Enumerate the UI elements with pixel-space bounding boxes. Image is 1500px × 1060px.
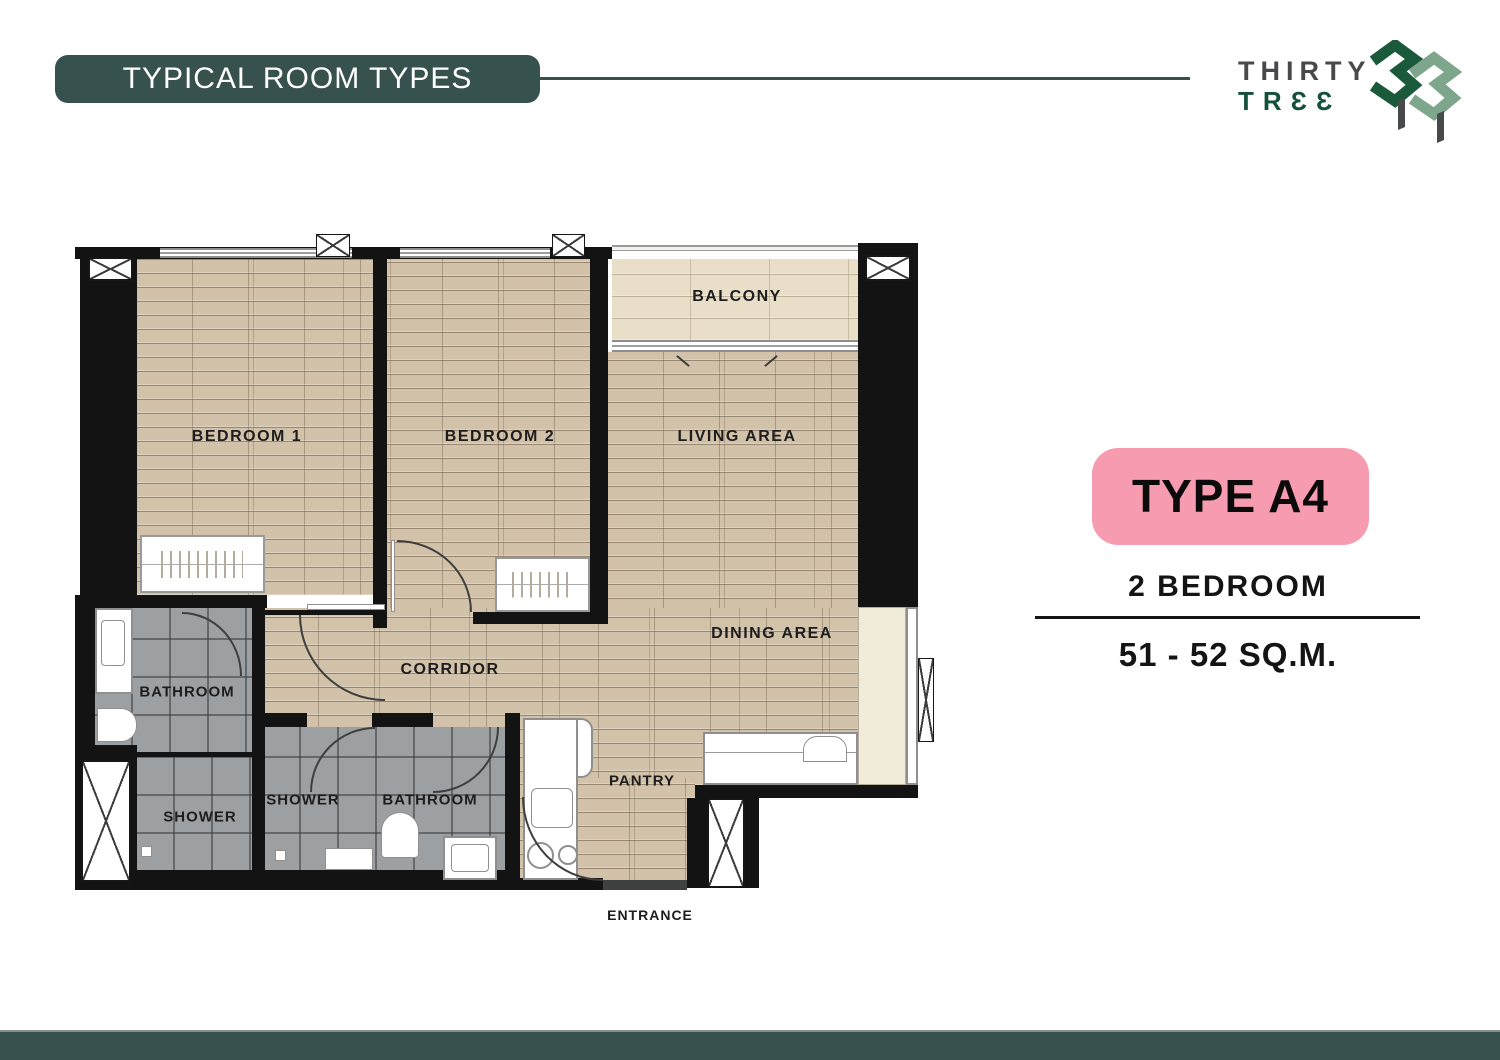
vanity-counter: [325, 848, 373, 870]
balcony-railing: [612, 245, 858, 251]
room-label-dining-area: DINING AREA: [711, 625, 833, 643]
toilet: [381, 812, 419, 858]
room-label-shower-1: SHOWER: [163, 809, 237, 826]
room-label-corridor: CORRIDOR: [400, 661, 499, 679]
shower-drain: [141, 846, 152, 857]
room-label-shower-2: SHOWER: [266, 792, 340, 809]
wall-bedroom2-bottom: [473, 612, 608, 624]
room-label-pantry: PANTRY: [609, 773, 675, 790]
wall-entrance-col-left: [687, 798, 707, 888]
wall-bath2-top-a: [263, 713, 307, 727]
cabinet-side-strip: [906, 607, 918, 785]
shaft-x-icon: [865, 255, 911, 281]
wall-bath2-pantry: [505, 713, 520, 888]
brand-word-thirty: THIRTY: [1238, 56, 1372, 86]
sliding-door-balcony: [612, 340, 858, 352]
wall-right: [858, 318, 918, 607]
bedroom-count: 2 BEDROOM: [1027, 570, 1429, 604]
room-label-bedroom-2: BEDROOM 2: [445, 428, 555, 446]
wall-left-lower: [75, 595, 95, 745]
entrance-threshold: [603, 880, 687, 890]
wall-bathroom1-shower-divider: [95, 752, 252, 757]
room-label-balcony: BALCONY: [692, 288, 782, 306]
toilet: [97, 708, 137, 742]
shower-drain: [275, 850, 286, 861]
wardrobe-bedroom-1: [140, 535, 265, 593]
floorplan: BEDROOM 1 BEDROOM 2 LIVING AREA BALCONY …: [75, 240, 935, 908]
sink-basin: [101, 620, 125, 666]
area-range: 51 - 52 SQ.M.: [1027, 636, 1429, 674]
room-label-bedroom-1: BEDROOM 1: [192, 428, 302, 446]
brand-logo: THIRTY TRƐƐ: [1238, 56, 1372, 116]
wall-left-column: [80, 247, 137, 598]
window-right-icon: [918, 658, 934, 742]
wall-bathroom1-top: [95, 595, 267, 608]
panel-divider: [1035, 616, 1420, 619]
door-leaf: [391, 540, 395, 612]
title-rule: [540, 77, 1190, 80]
type-badge: TYPE A4: [1092, 448, 1369, 545]
shaft-x-icon: [88, 257, 133, 281]
window-bedroom-2: [400, 248, 550, 258]
wall-dining-bottom: [695, 785, 918, 798]
dining-chair: [803, 736, 847, 762]
room-label-bathroom-2: BATHROOM: [382, 792, 477, 809]
wall-bath2-top-b: [372, 713, 433, 727]
footer-bar: [0, 1030, 1500, 1060]
wall-bedroom-divider: [373, 259, 387, 628]
shaft-x-icon: [707, 798, 745, 888]
room-label-entrance: ENTRANCE: [607, 907, 693, 923]
shaft-x-icon: [81, 760, 131, 882]
brand-word-tree: TRƐƐ: [1238, 86, 1372, 116]
built-in-cabinet: [858, 607, 906, 785]
column-marker-icon: [552, 234, 585, 257]
room-label-living-area: LIVING AREA: [677, 428, 796, 446]
brand-mark-33-icon: [1368, 40, 1480, 148]
sink-basin: [451, 844, 489, 872]
wall-bedroom2-right: [590, 259, 608, 612]
wall-entrance-col-right: [745, 798, 759, 888]
floor-living-area: [608, 352, 858, 612]
wall-bathroom1-right: [252, 595, 265, 870]
wardrobe-bedroom-2: [495, 557, 590, 612]
column-marker-icon: [316, 234, 350, 257]
door-leaf: [307, 604, 385, 610]
page-title: TYPICAL ROOM TYPES: [55, 55, 540, 103]
room-label-bathroom-1: BATHROOM: [139, 684, 234, 701]
page: TYPICAL ROOM TYPES THIRTY TRƐƐ TYPE A4 2…: [0, 0, 1500, 1060]
